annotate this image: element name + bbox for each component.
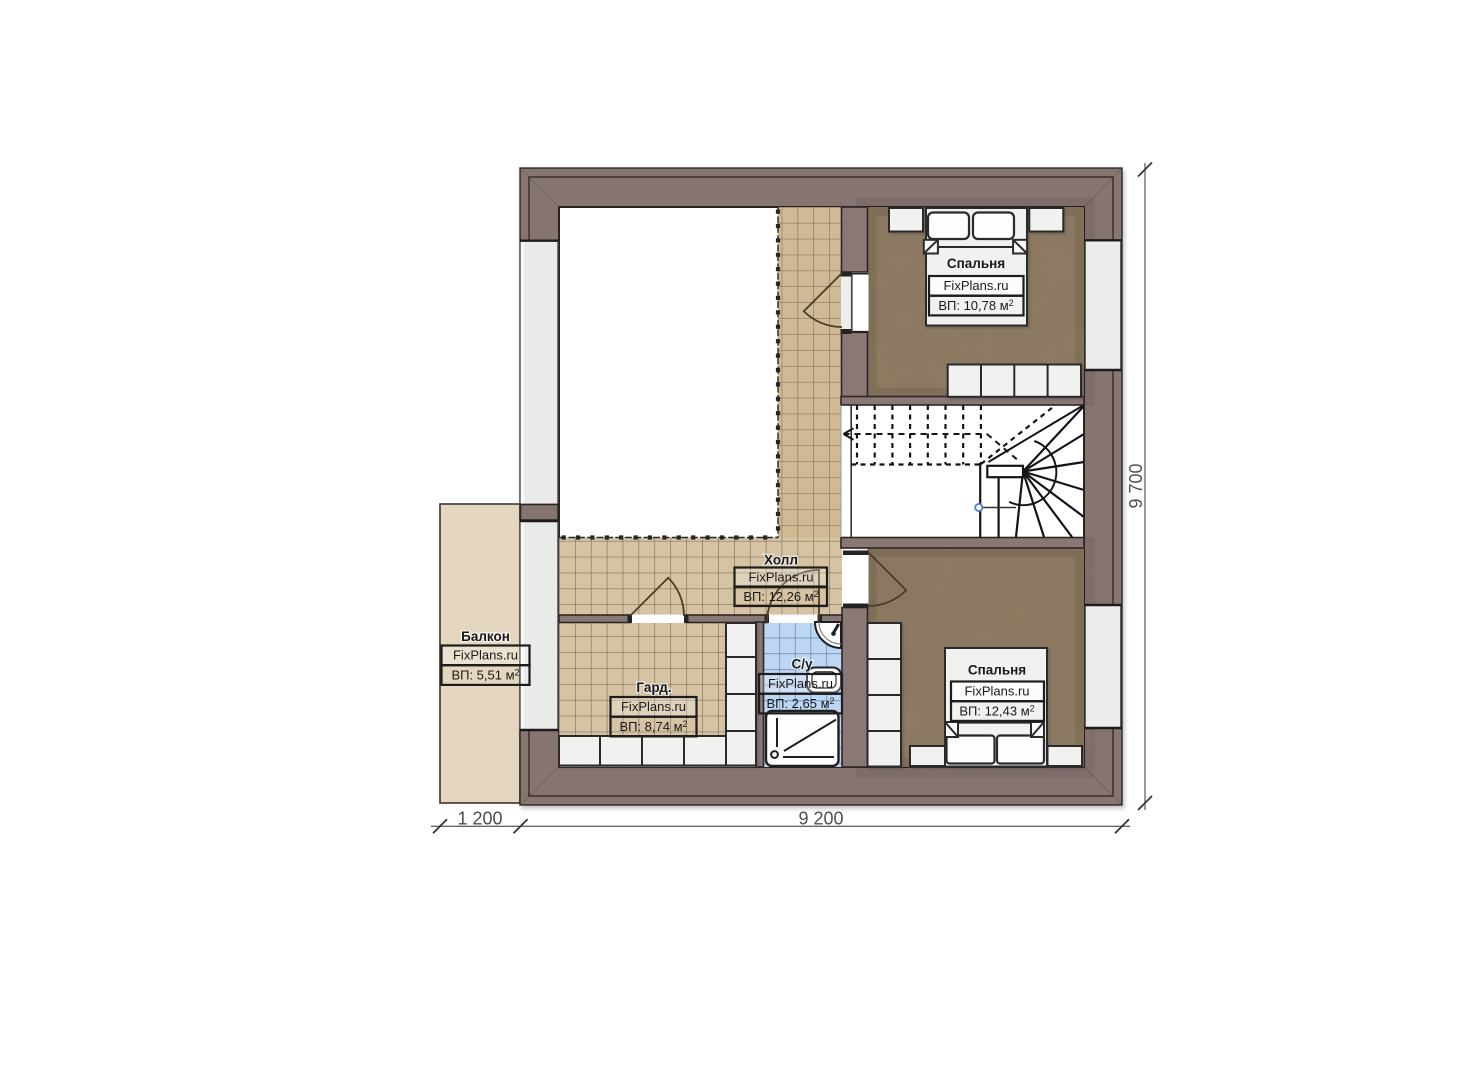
svg-text:ВП: 12,26 м2: ВП: 12,26 м2 bbox=[743, 589, 818, 604]
svg-text:FixPlans.ru: FixPlans.ru bbox=[748, 570, 813, 585]
svg-text:FixPlans.ru: FixPlans.ru bbox=[943, 278, 1008, 293]
svg-text:9 700: 9 700 bbox=[1126, 463, 1146, 508]
svg-text:FixPlans.ru: FixPlans.ru bbox=[621, 699, 686, 714]
svg-text:ВП: 10,78 м2: ВП: 10,78 м2 bbox=[938, 298, 1013, 313]
svg-text:С/у: С/у bbox=[791, 657, 813, 672]
svg-text:1 200: 1 200 bbox=[457, 809, 502, 829]
svg-text:Спальня: Спальня bbox=[968, 663, 1026, 678]
svg-text:Холл: Холл bbox=[764, 553, 798, 568]
svg-text:FixPlans.ru: FixPlans.ru bbox=[768, 676, 833, 691]
svg-text:ВП: 8,74 м2: ВП: 8,74 м2 bbox=[619, 719, 687, 734]
svg-text:FixPlans.ru: FixPlans.ru bbox=[964, 684, 1029, 699]
svg-text:9 200: 9 200 bbox=[798, 809, 843, 829]
svg-text:Гард.: Гард. bbox=[636, 680, 671, 695]
svg-text:ВП: 12,43 м2: ВП: 12,43 м2 bbox=[959, 704, 1034, 719]
svg-text:ВП: 2,65 м2: ВП: 2,65 м2 bbox=[766, 696, 834, 711]
svg-text:ВП: 5,51 м2: ВП: 5,51 м2 bbox=[451, 668, 519, 683]
svg-text:FixPlans.ru: FixPlans.ru bbox=[453, 648, 518, 663]
svg-text:Балкон: Балкон bbox=[461, 629, 510, 644]
svg-text:Спальня: Спальня bbox=[947, 256, 1005, 271]
